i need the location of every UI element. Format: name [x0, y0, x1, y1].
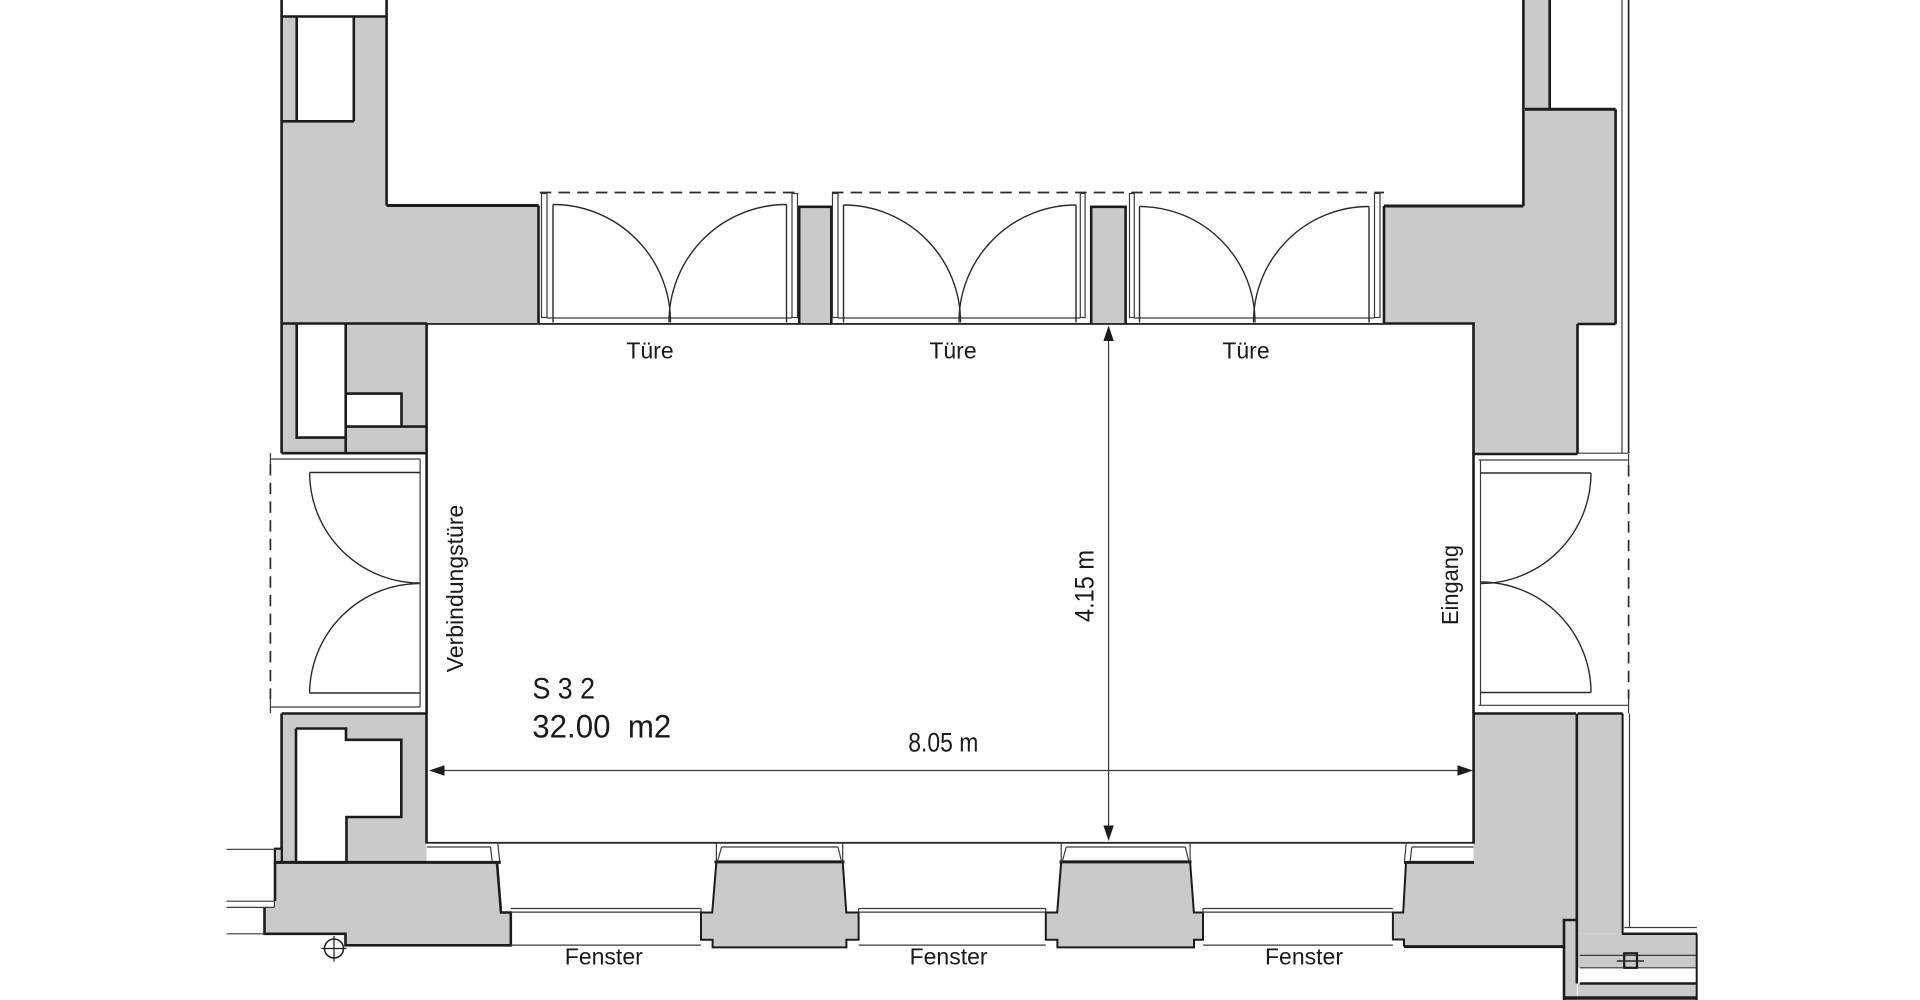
svg-text:S 3 2: S 3 2 — [533, 673, 596, 706]
svg-text:Türe: Türe — [929, 338, 976, 364]
svg-text:Fenster: Fenster — [910, 944, 988, 970]
svg-text:32.00 m2: 32.00 m2 — [532, 708, 671, 744]
svg-text:Türe: Türe — [626, 338, 673, 364]
svg-text:Fenster: Fenster — [1265, 944, 1343, 970]
svg-text:Türe: Türe — [1222, 338, 1269, 364]
svg-text:Fenster: Fenster — [565, 944, 643, 970]
svg-text:4.15 m: 4.15 m — [1070, 550, 1100, 622]
svg-text:Eingang: Eingang — [1437, 545, 1463, 625]
svg-text:8.05 m: 8.05 m — [908, 728, 978, 758]
svg-text:Verbindungstüre: Verbindungstüre — [442, 505, 468, 673]
